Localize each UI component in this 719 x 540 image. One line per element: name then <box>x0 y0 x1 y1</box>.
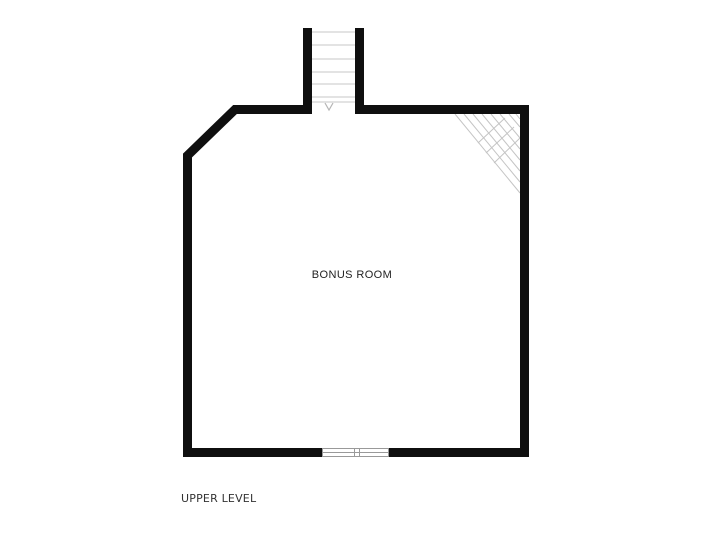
wall-right-section <box>355 110 525 453</box>
stair-treads <box>312 32 355 102</box>
sloped-ceiling-hatch <box>455 114 520 193</box>
floor-plan-image: BONUS ROOM UPPER LEVEL <box>0 0 719 540</box>
walls <box>188 28 525 453</box>
stair-direction-arrow-icon <box>325 103 333 110</box>
wall-left-section <box>188 110 323 453</box>
window <box>323 449 389 457</box>
room-label: BONUS ROOM <box>282 269 422 281</box>
floor-level-title: UPPER LEVEL <box>181 492 256 505</box>
